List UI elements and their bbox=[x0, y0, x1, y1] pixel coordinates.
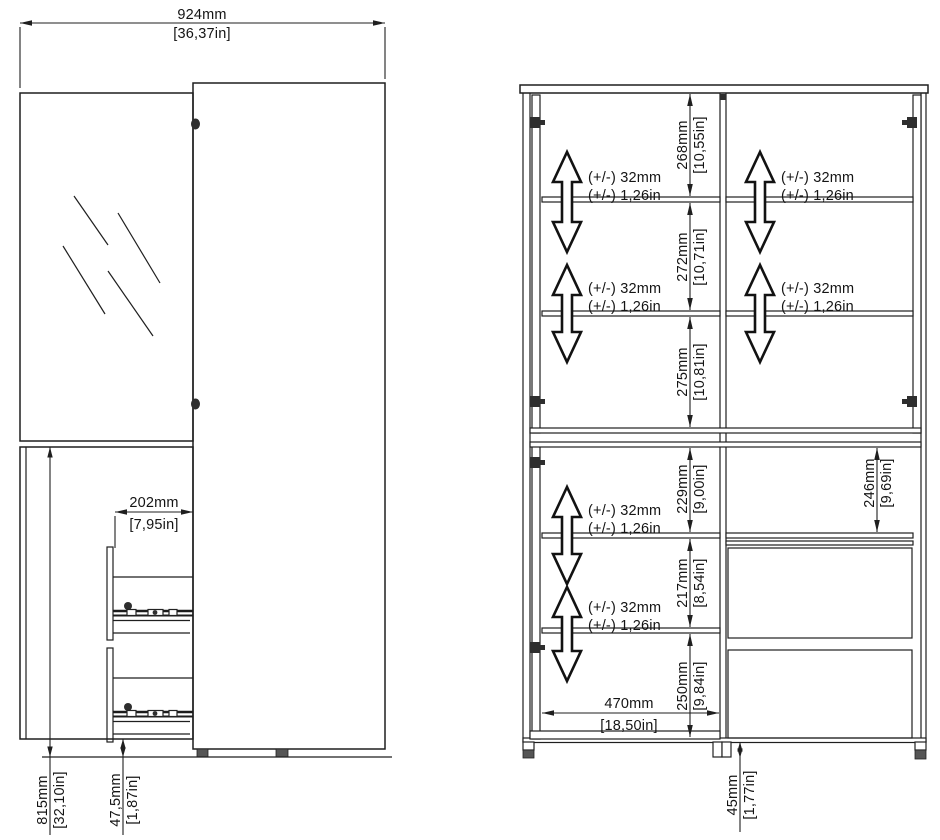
dim-label-mm: 268mm bbox=[675, 120, 691, 169]
adjust-label-in: (+/-) 1,26in bbox=[588, 188, 661, 204]
interior-view: 268mm [10,55in] 272mm [10,71in] 275mm [1… bbox=[520, 85, 928, 832]
middle-panel bbox=[530, 442, 921, 447]
drawer-2 bbox=[107, 648, 193, 742]
adjust-label-mm: (+/-) 32mm bbox=[588, 170, 661, 186]
slide-clip bbox=[127, 610, 136, 616]
connector-mark bbox=[720, 94, 726, 100]
adjust-label-mm: (+/-) 32mm bbox=[781, 281, 854, 297]
right-door bbox=[191, 83, 385, 757]
dim-label-in: [36,37in] bbox=[173, 26, 230, 42]
dim-label-in: [7,95in] bbox=[129, 517, 178, 533]
glass-hatch bbox=[63, 196, 160, 336]
dim-label-in: [9,00in] bbox=[692, 464, 708, 513]
overall-width-dimension: 924mm [36,37in] bbox=[20, 7, 385, 88]
dim-label-mm: 202mm bbox=[129, 495, 178, 511]
dim-label-in: [10,55in] bbox=[692, 116, 708, 173]
glass-door bbox=[20, 93, 193, 441]
slide-clip bbox=[127, 711, 136, 717]
dim-label-mm: 924mm bbox=[177, 7, 226, 23]
upper-door-strip bbox=[532, 95, 540, 433]
left-door-edge bbox=[530, 95, 545, 739]
adjust-label-in: (+/-) 1,26in bbox=[588, 299, 661, 315]
hinge-icon bbox=[191, 119, 200, 130]
adjust-label-in: (+/-) 1,26in bbox=[781, 188, 854, 204]
arrowhead-down bbox=[120, 748, 125, 758]
adjust-label-mm: (+/-) 32mm bbox=[588, 281, 661, 297]
adjust-arrow-icon bbox=[553, 587, 581, 681]
foot bbox=[523, 742, 534, 750]
front-view: 924mm [36,37in] bbox=[20, 7, 392, 835]
drawer-knob bbox=[124, 703, 132, 711]
right-door-edge bbox=[902, 95, 921, 433]
right-door-panel bbox=[193, 83, 385, 749]
dim-label-in: [32,10in] bbox=[52, 771, 68, 828]
hinge-icon bbox=[530, 117, 545, 128]
foot bbox=[276, 749, 288, 757]
drawer-front bbox=[728, 548, 912, 638]
dim-label-mm: 47,5mm bbox=[108, 773, 124, 827]
dim-label-mm: 272mm bbox=[675, 232, 691, 281]
feet bbox=[523, 742, 926, 759]
lower-height-dimension: 815mm [32,10in] bbox=[35, 447, 68, 835]
slide-clip bbox=[169, 610, 177, 616]
drawer-knob bbox=[124, 602, 132, 610]
dim-label-in: [1,77in] bbox=[742, 770, 758, 819]
hinge-icon bbox=[902, 117, 917, 128]
foot bbox=[197, 749, 208, 757]
adjust-label-mm: (+/-) 32mm bbox=[588, 503, 661, 519]
slide-clip bbox=[169, 711, 177, 717]
plinth-height-dimension: 47,5mm [1,87in] bbox=[108, 739, 141, 835]
dim-label-in: [1,87in] bbox=[125, 775, 141, 824]
section-height-dimensions: 268mm [10,55in] 272mm [10,71in] 275mm [1… bbox=[675, 94, 708, 737]
internal-drawers bbox=[728, 548, 912, 738]
drawer-front-panel bbox=[107, 547, 113, 640]
dim-label-mm: 217mm bbox=[675, 558, 691, 607]
drawing-canvas: 924mm [36,37in] bbox=[0, 0, 940, 840]
dim-label-in: [18,50in] bbox=[600, 718, 657, 734]
center-foot bbox=[713, 742, 722, 757]
dim-label-mm: 229mm bbox=[675, 464, 691, 513]
adjust-label-mm: (+/-) 32mm bbox=[781, 170, 854, 186]
arrowhead-up bbox=[47, 447, 52, 458]
dim-label-mm: 250mm bbox=[675, 661, 691, 710]
dim-label-in: [9,84in] bbox=[692, 661, 708, 710]
dim-label-mm: 815mm bbox=[35, 775, 51, 824]
drawer-rail bbox=[726, 541, 913, 545]
dim-label-mm: 45mm bbox=[725, 774, 741, 815]
dim-label-mm: 470mm bbox=[604, 696, 653, 712]
hinge-icon bbox=[530, 396, 545, 407]
middle-panel bbox=[530, 428, 921, 433]
carcass bbox=[520, 85, 928, 743]
arrowhead-up bbox=[120, 739, 125, 749]
dim-label-mm: 275mm bbox=[675, 347, 691, 396]
hinge-icon bbox=[530, 457, 545, 468]
drawer-depth-dimension: 202mm [7,95in] bbox=[115, 495, 193, 548]
dim-label-in: [10,81in] bbox=[692, 343, 708, 400]
foot bbox=[915, 742, 926, 750]
dim-label-in: [8,54in] bbox=[692, 558, 708, 607]
hinge-icon bbox=[902, 396, 917, 407]
right-compartment-dimension: 246mm [9,69in] bbox=[862, 448, 895, 532]
arrowhead-down bbox=[737, 749, 742, 759]
drawer-front-panel bbox=[107, 648, 113, 742]
drawer-front bbox=[728, 650, 912, 738]
adjust-label-in: (+/-) 1,26in bbox=[588, 618, 661, 634]
technical-drawing: 924mm [36,37in] bbox=[0, 0, 940, 840]
center-foot bbox=[722, 742, 731, 757]
arrowhead-down bbox=[47, 747, 52, 758]
upper-door-strip bbox=[913, 95, 921, 433]
top-panel bbox=[520, 85, 928, 93]
lower-door-strip bbox=[532, 445, 540, 739]
adjust-label-mm: (+/-) 32mm bbox=[588, 600, 661, 616]
adjust-label-in: (+/-) 1,26in bbox=[781, 299, 854, 315]
hinge-icon bbox=[191, 399, 200, 410]
drawer-1 bbox=[107, 547, 193, 640]
dim-label-in: [10,71in] bbox=[692, 228, 708, 285]
drawer-rail bbox=[726, 533, 913, 538]
hinge-icon bbox=[530, 642, 545, 653]
dim-label-mm: 246mm bbox=[862, 458, 878, 507]
dim-label-in: [9,69in] bbox=[879, 458, 895, 507]
glass-door-panel bbox=[20, 93, 193, 441]
adjust-label-in: (+/-) 1,26in bbox=[588, 521, 661, 537]
